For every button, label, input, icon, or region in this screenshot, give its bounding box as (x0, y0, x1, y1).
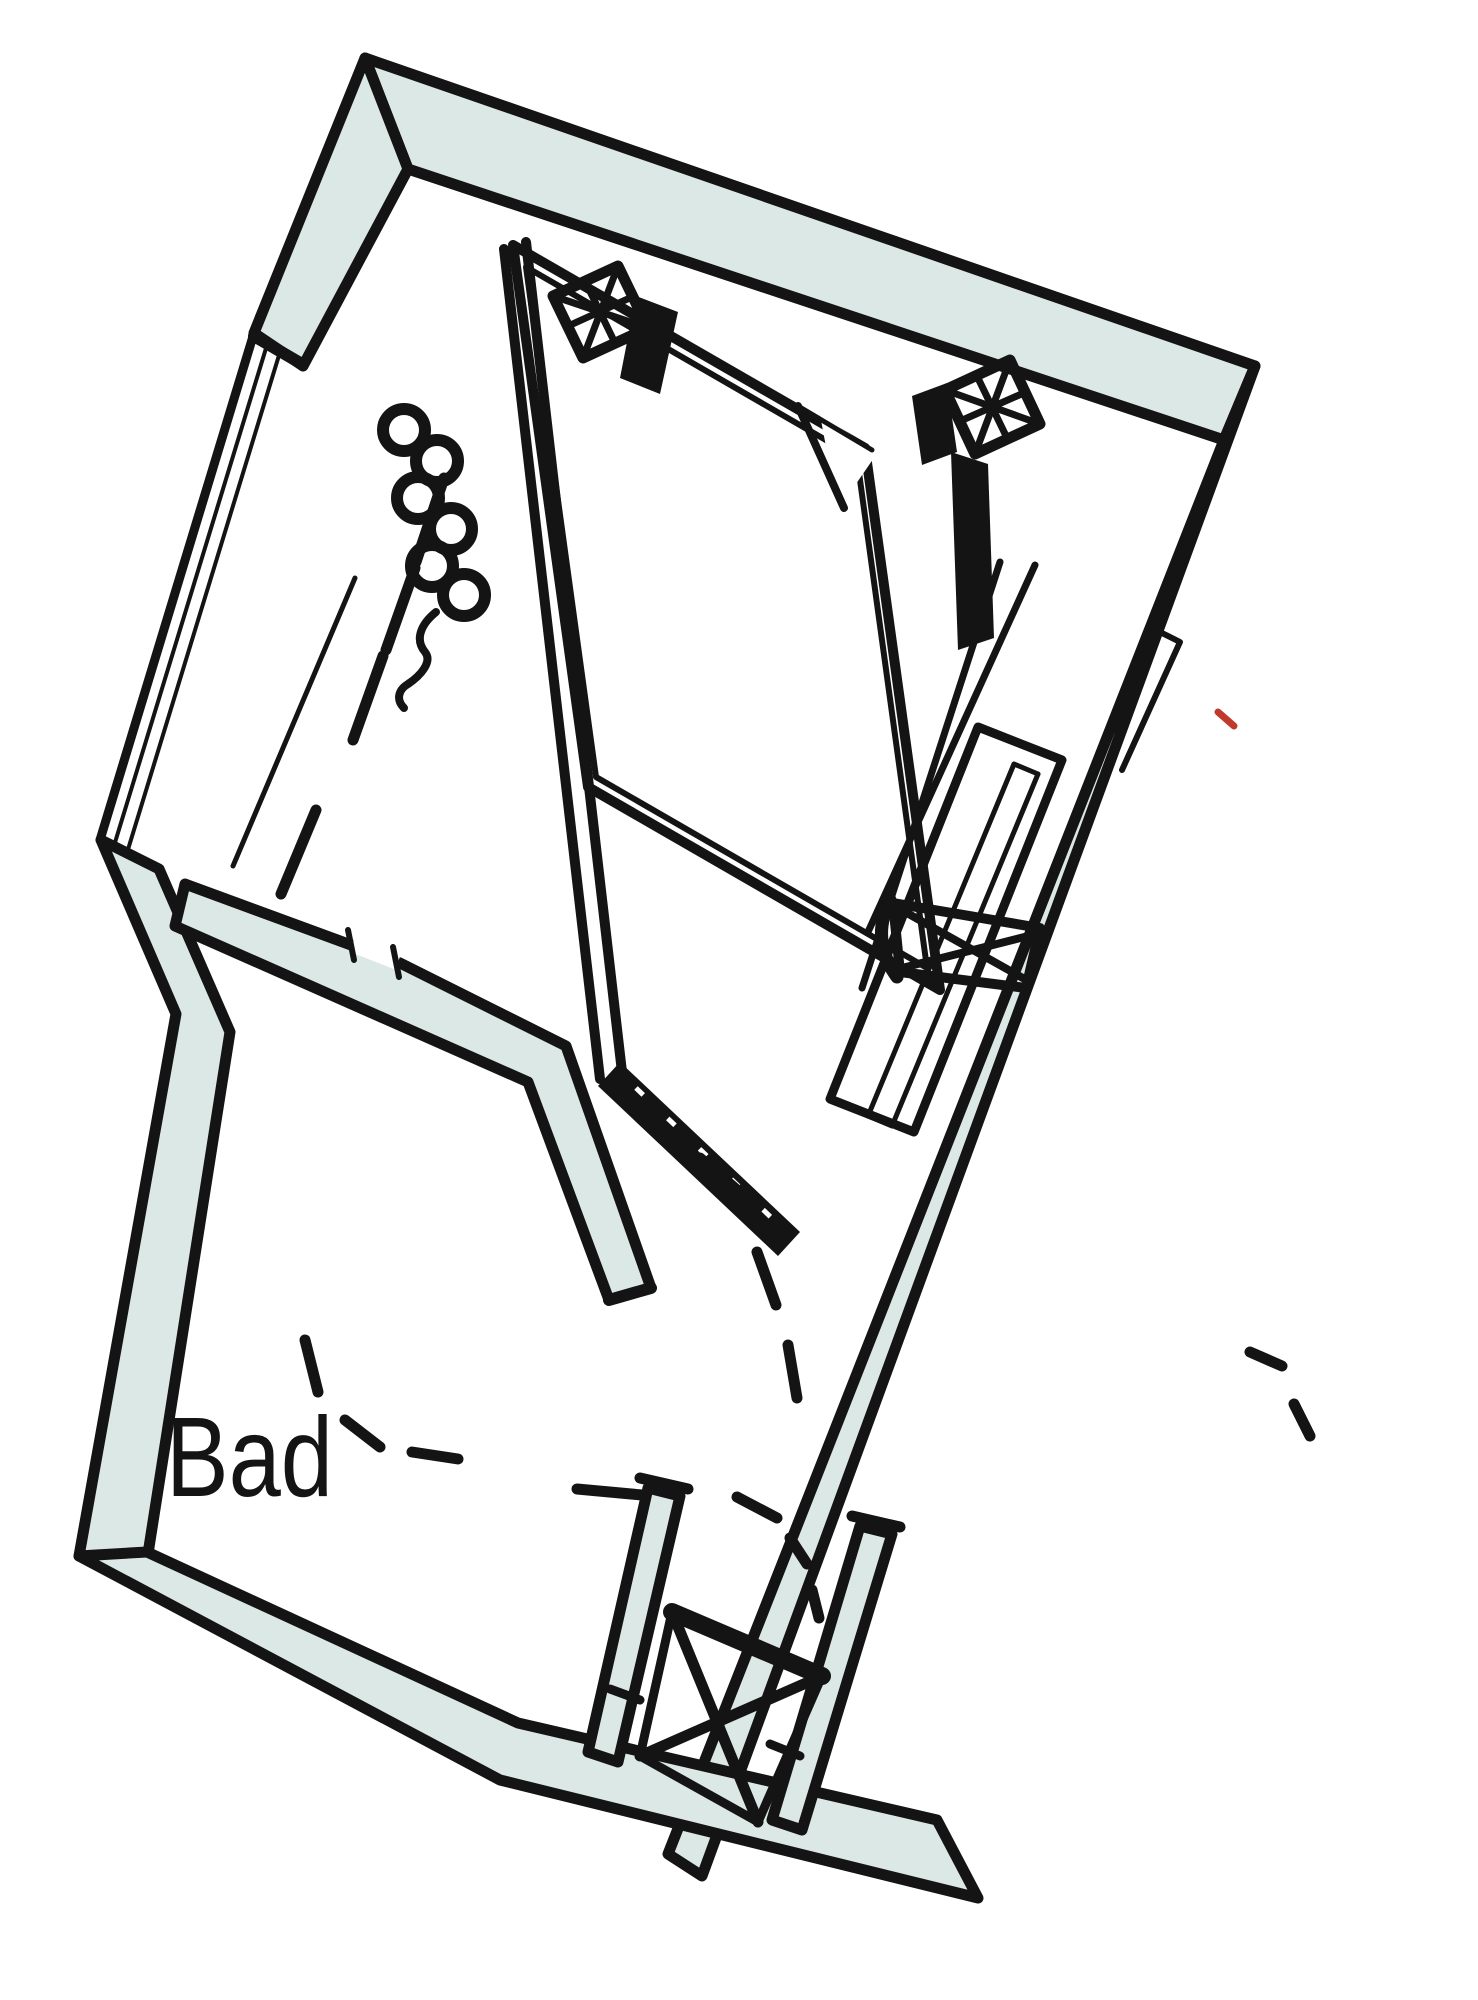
window-left (100, 333, 280, 856)
dash (345, 1420, 380, 1447)
bathroom-label: Bad (166, 1394, 333, 1520)
dash (386, 568, 415, 650)
knee-wall-line (233, 578, 355, 866)
dash (737, 1497, 777, 1518)
dash (788, 1345, 797, 1398)
knee-wall-dashes (233, 478, 444, 894)
radiator-pipe-tail (399, 612, 436, 708)
desk-inner-line (1014, 764, 1038, 774)
dash (1250, 1352, 1282, 1366)
window-glazing-line (113, 345, 267, 849)
wall-partition-bathroom (175, 884, 651, 1300)
dash (577, 1489, 642, 1495)
wall-stub (951, 452, 994, 650)
dash (281, 810, 316, 894)
dash (812, 1590, 819, 1618)
vent-grille-icon-right (912, 360, 1040, 650)
radiator-icon (383, 409, 485, 708)
window-outer-line (100, 333, 254, 840)
dash (305, 1340, 318, 1392)
wall-left-upper-exterior (254, 58, 408, 366)
radiator-loop (443, 574, 485, 616)
floorplan-drawing: Bad (0, 0, 1478, 2000)
wall-top-exterior (365, 58, 1255, 440)
interior-wall-line (504, 249, 600, 1079)
floorplan-canvas: Bad (0, 0, 1478, 2000)
red-mark (1218, 712, 1234, 726)
vent-grille-icon-left (553, 266, 678, 394)
dash (412, 1452, 458, 1459)
dash (1294, 1404, 1310, 1436)
dash (757, 1252, 776, 1305)
dash (353, 656, 383, 740)
window-glazing-line (126, 352, 280, 856)
